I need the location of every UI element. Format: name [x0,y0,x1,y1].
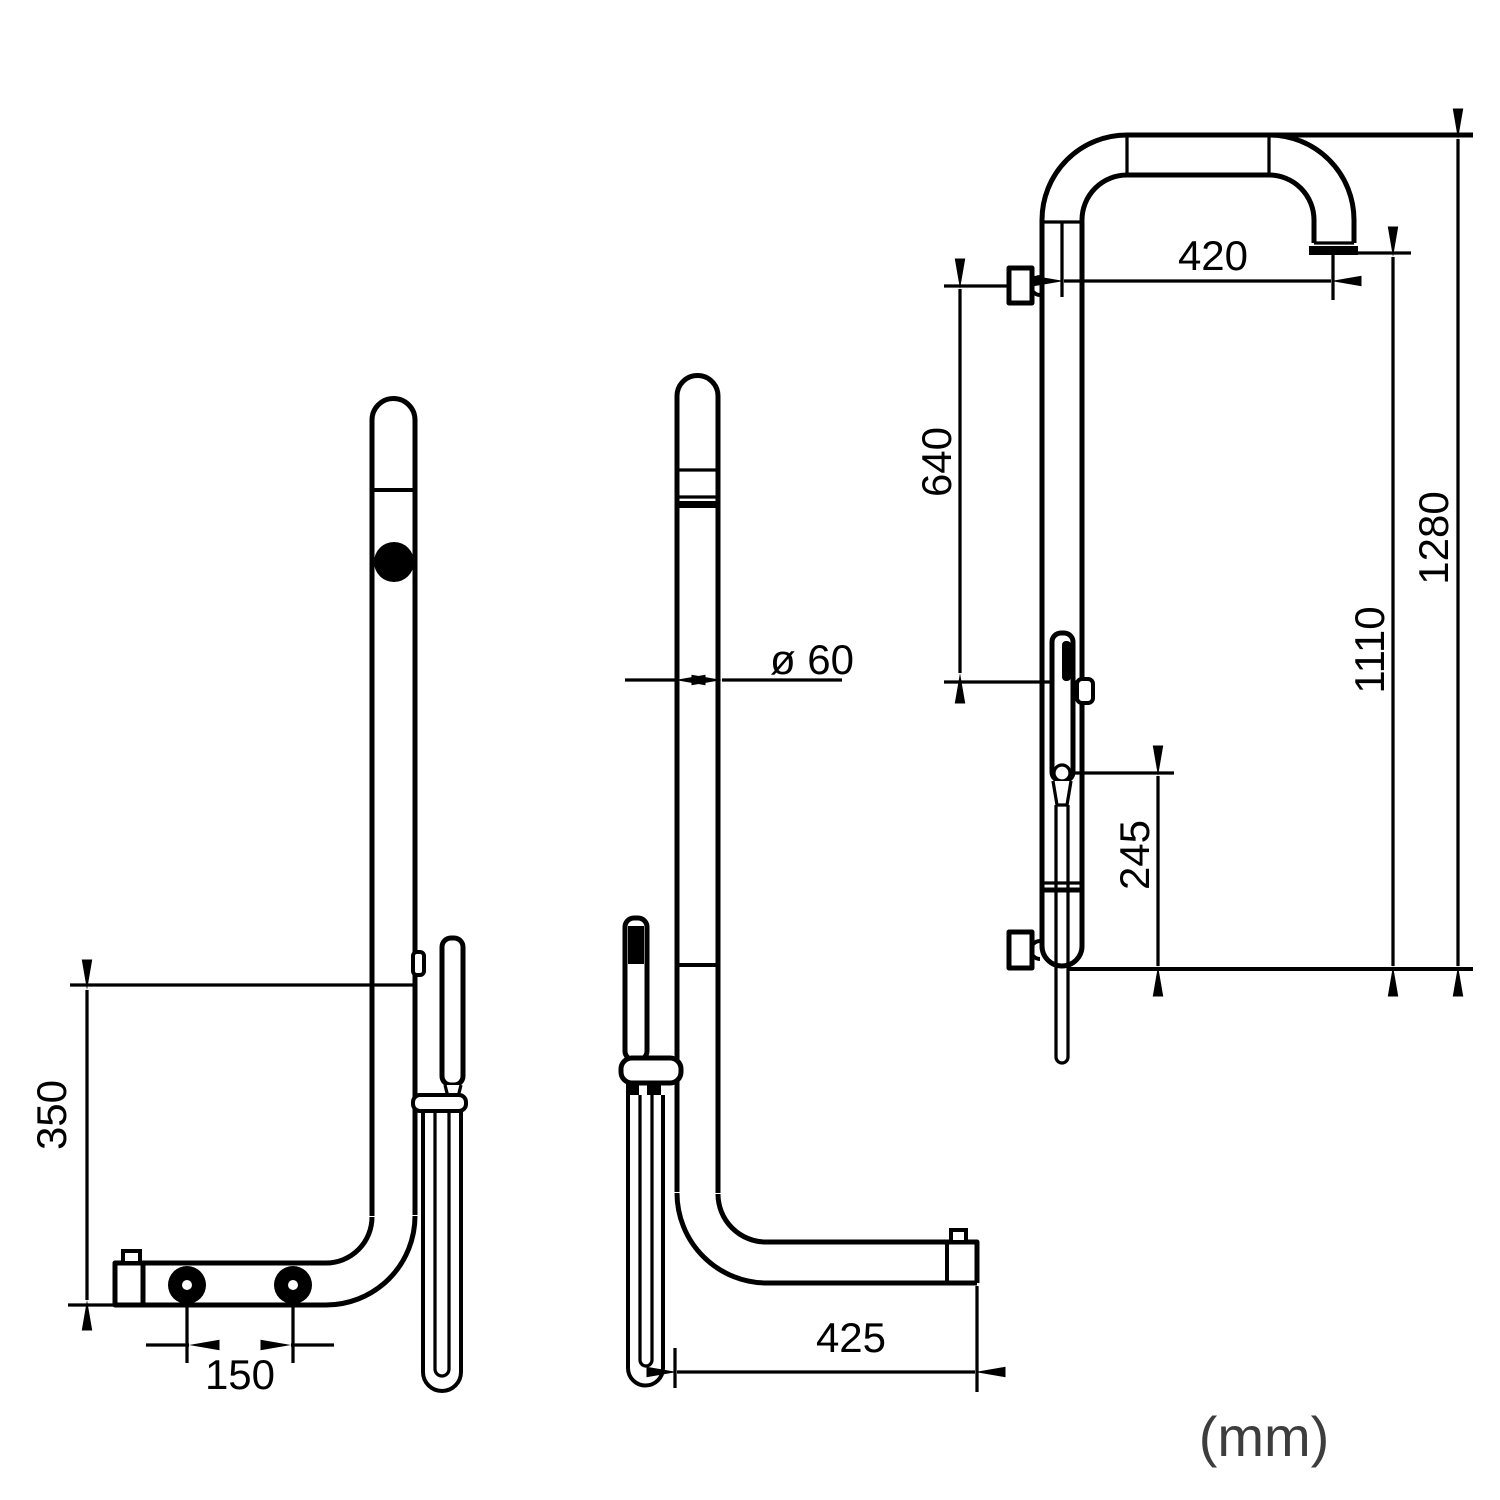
wand-grip [628,926,644,964]
dimension-1110: 1110 [1346,253,1411,966]
shower-column-dimension-drawing: 350 150 ø 60 425 [0,0,1500,1500]
dimension-diameter-60: ø 60 [625,636,854,683]
holder-bracket [1077,679,1093,703]
hose [1056,805,1068,1063]
hand-shower-wand [442,938,463,1085]
dimension-150: 150 [146,1307,334,1398]
wand-pivot [1054,765,1070,781]
hose-loop-outer [628,1095,663,1386]
dim-1280-label: 1280 [1410,491,1457,584]
column-collar [677,501,718,508]
dimension-420: 420 [1064,232,1333,300]
wall-connection-right [274,1266,312,1304]
hose-loop-inner [640,1095,652,1366]
dim-245-label: 245 [1111,820,1158,890]
dimension-350: 350 [28,985,417,1305]
dim-150-label: 150 [205,1351,275,1398]
upper-valve-knob [1009,268,1032,303]
bend-inner [143,1217,372,1263]
arm-end-tab [951,1230,966,1242]
dimension-245: 245 [1070,773,1174,966]
shower-holder [413,1095,466,1111]
column-outline [372,399,415,1217]
dimension-425: 425 [675,1286,977,1392]
column-outline [1042,222,1082,966]
technical-drawing-page: 350 150 ø 60 425 [0,0,1500,1500]
hose-loop-outer [423,1111,461,1391]
left-side-view [115,399,466,1392]
dimension-640: 640 [913,286,1010,673]
units-note: (mm) [1199,1405,1330,1468]
wall-connection-left [168,1266,206,1304]
wand-spray-face [1062,641,1071,681]
dim-350-label: 350 [28,1080,75,1150]
dim-420-label: 420 [1178,232,1248,279]
bracket-lug [413,952,424,975]
arm-end-cap [947,1242,977,1283]
dim-640-label: 640 [913,427,960,497]
bend-inner-and-arm-top [718,1194,947,1242]
dim-1110-label: 1110 [1346,606,1393,693]
hose-loop-inner [435,1111,449,1376]
lower-valve-knob [1009,932,1032,968]
wand-cone [1053,781,1071,805]
dimension-1280: 1280 [1410,139,1458,966]
dim-60-label: ø 60 [770,636,854,683]
dim-425-label: 425 [816,1314,886,1361]
base-tab [123,1251,140,1263]
control-knob [374,542,414,582]
middle-view [621,375,977,1385]
shower-holder [621,1058,681,1083]
